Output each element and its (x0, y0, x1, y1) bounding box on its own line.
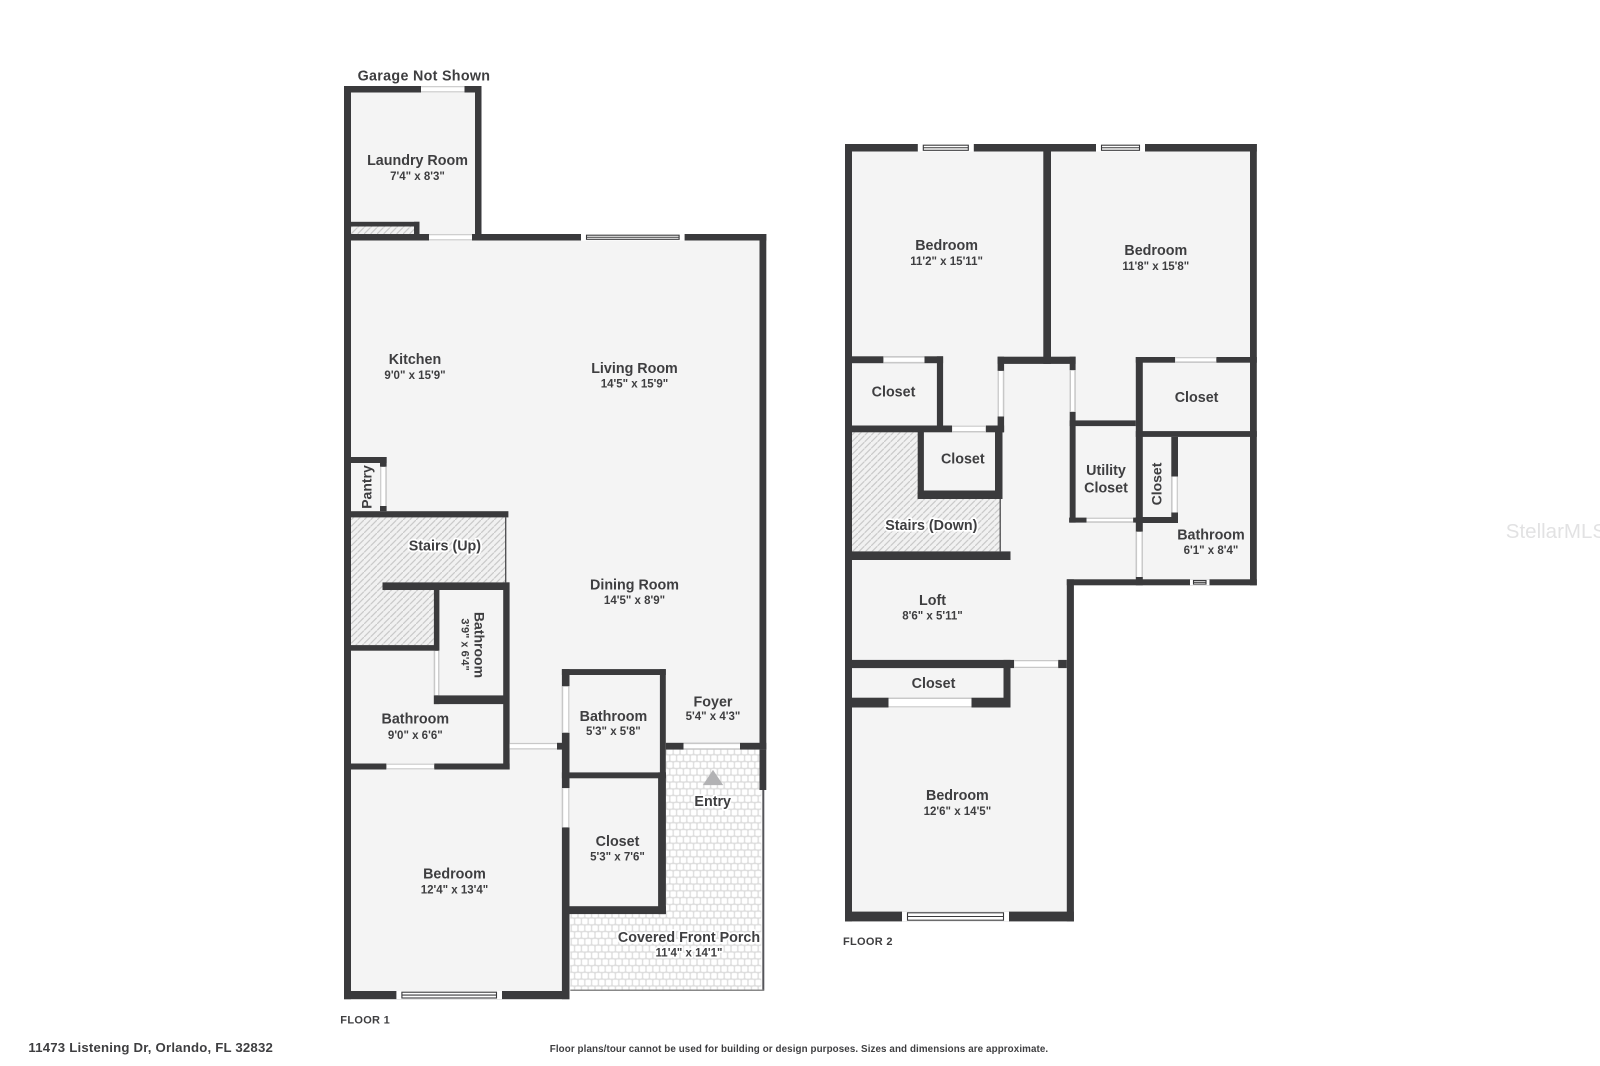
svg-text:Stairs (Up): Stairs (Up) (409, 538, 482, 554)
svg-text:12'6" x 14'5": 12'6" x 14'5" (924, 806, 992, 818)
svg-text:Closet: Closet (596, 834, 640, 850)
svg-text:Closet: Closet (872, 385, 916, 401)
svg-text:6'1" x 8'4": 6'1" x 8'4" (1184, 545, 1239, 557)
svg-text:Stairs (Down): Stairs (Down) (885, 518, 977, 534)
svg-text:Closet: Closet (912, 676, 956, 692)
svg-text:Bedroom: Bedroom (423, 867, 486, 883)
svg-text:Closet: Closet (1149, 462, 1165, 505)
svg-text:FLOOR 1: FLOOR 1 (340, 1015, 390, 1027)
svg-text:Bedroom: Bedroom (926, 788, 989, 804)
svg-text:5'4" x 4'3": 5'4" x 4'3" (686, 711, 741, 723)
svg-text:Bathroom: Bathroom (382, 711, 450, 727)
svg-text:Bedroom: Bedroom (915, 238, 978, 254)
svg-text:Bedroom: Bedroom (1124, 243, 1187, 259)
svg-text:9'0" x 15'9": 9'0" x 15'9" (384, 370, 445, 382)
svg-text:Laundry Room: Laundry Room (367, 153, 468, 169)
svg-text:Closet: Closet (941, 451, 985, 467)
svg-text:Loft: Loft (919, 593, 946, 609)
svg-text:3'9" x 6'4": 3'9" x 6'4" (459, 618, 471, 670)
svg-text:Entry: Entry (694, 794, 731, 810)
svg-text:7'4" x 8'3": 7'4" x 8'3" (390, 171, 445, 183)
svg-text:Dining Room: Dining Room (590, 578, 679, 594)
svg-text:Living Room: Living Room (591, 361, 678, 377)
svg-text:5'3" x 7'6": 5'3" x 7'6" (590, 851, 645, 863)
svg-text:11'2" x 15'11": 11'2" x 15'11" (910, 256, 983, 268)
svg-text:Bathroom: Bathroom (580, 709, 648, 725)
svg-text:5'3" x 5'8": 5'3" x 5'8" (586, 726, 641, 738)
svg-text:Foyer: Foyer (694, 695, 733, 711)
svg-text:Closet: Closet (1084, 481, 1128, 497)
svg-text:Floor plans/tour cannot be use: Floor plans/tour cannot be used for buil… (550, 1044, 1049, 1055)
svg-text:FLOOR 2: FLOOR 2 (843, 936, 893, 948)
svg-text:14'5" x 15'9": 14'5" x 15'9" (601, 379, 669, 391)
svg-text:Utility: Utility (1086, 463, 1126, 479)
svg-text:12'4" x 13'4": 12'4" x 13'4" (421, 884, 489, 896)
svg-text:Kitchen: Kitchen (389, 352, 441, 368)
svg-text:14'5" x 8'9": 14'5" x 8'9" (604, 595, 665, 607)
svg-text:StellarMLS: StellarMLS (1506, 520, 1600, 543)
svg-text:8'6" x 5'11": 8'6" x 5'11" (902, 610, 963, 622)
svg-text:11'4" x 14'1": 11'4" x 14'1" (656, 947, 723, 959)
svg-text:Closet: Closet (1175, 390, 1219, 406)
svg-text:Covered Front Porch: Covered Front Porch (618, 930, 760, 946)
svg-text:Pantry: Pantry (359, 465, 375, 509)
svg-text:Bathroom: Bathroom (471, 612, 487, 678)
svg-text:11473 Listening Dr, Orlando, F: 11473 Listening Dr, Orlando, FL 32832 (28, 1040, 273, 1055)
svg-text:11'8" x 15'8": 11'8" x 15'8" (1122, 261, 1189, 273)
svg-text:Garage Not Shown: Garage Not Shown (358, 69, 491, 85)
svg-text:Bathroom: Bathroom (1177, 528, 1245, 544)
svg-text:9'0" x 6'6": 9'0" x 6'6" (388, 730, 443, 742)
